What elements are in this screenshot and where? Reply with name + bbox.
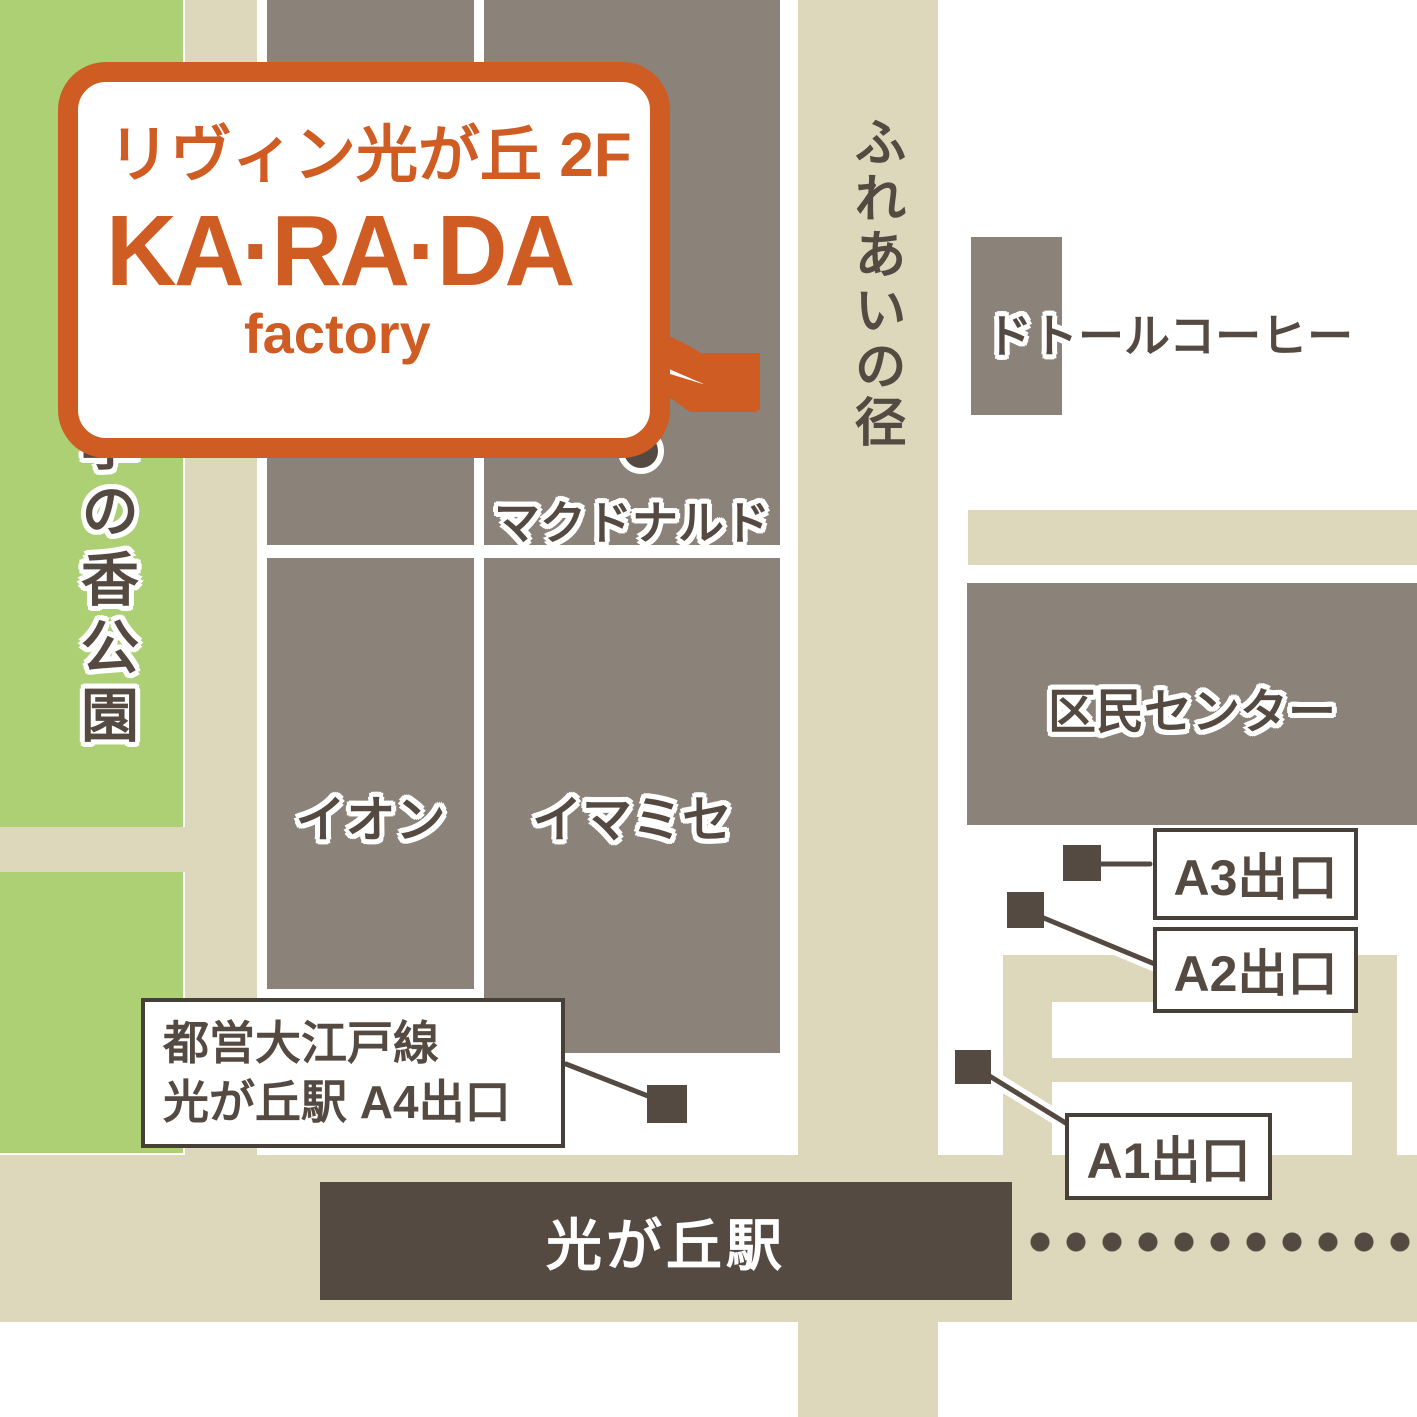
fureai-road-label: ふれあいの径 xyxy=(838,115,913,451)
a1-exit-label: A1出口 xyxy=(1087,1121,1251,1193)
destination-bubble: リヴィン光が丘 2F KA·RA·DA factory xyxy=(58,62,670,458)
kumin-center-label: 区民センター xyxy=(967,672,1417,742)
a4-exit-line1: 都営大江戸線 xyxy=(163,1014,439,1073)
karada-factory-sub: factory xyxy=(244,301,650,366)
a4-exit-marker xyxy=(647,1085,687,1123)
imamise-label: イマミセ xyxy=(484,780,780,852)
a1-exit-marker xyxy=(955,1050,991,1084)
a4-exit-line2: 光が丘駅 A4出口 xyxy=(163,1073,511,1132)
a4-exit-callout: 都営大江戸線 光が丘駅 A4出口 xyxy=(141,998,565,1148)
mcdonalds-label: マクドナルド xyxy=(452,487,812,553)
a1-exit-callout: A1出口 xyxy=(1065,1113,1272,1200)
aeon-label: イオン xyxy=(267,780,474,852)
a2-exit-marker xyxy=(1007,892,1044,928)
a2-exit-callout: A2出口 xyxy=(1153,927,1358,1013)
a3-exit-label: A3出口 xyxy=(1174,838,1338,910)
bubble-location-text: リヴィン光が丘 2F xyxy=(108,104,650,194)
a3-exit-callout: A3出口 xyxy=(1153,828,1358,920)
doutor-label: ドトールコーヒー xyxy=(986,300,1353,366)
a2-exit-label: A2出口 xyxy=(1174,934,1338,1006)
a3-exit-marker xyxy=(1063,845,1101,881)
karada-factory-logo: KA·RA·DA xyxy=(106,194,639,309)
access-map: 光が丘駅 四季の香公園 ふれあいの径 マクドナルド イオン イマミセ ドトールコ… xyxy=(0,0,1417,1417)
destination-marker xyxy=(703,353,760,410)
